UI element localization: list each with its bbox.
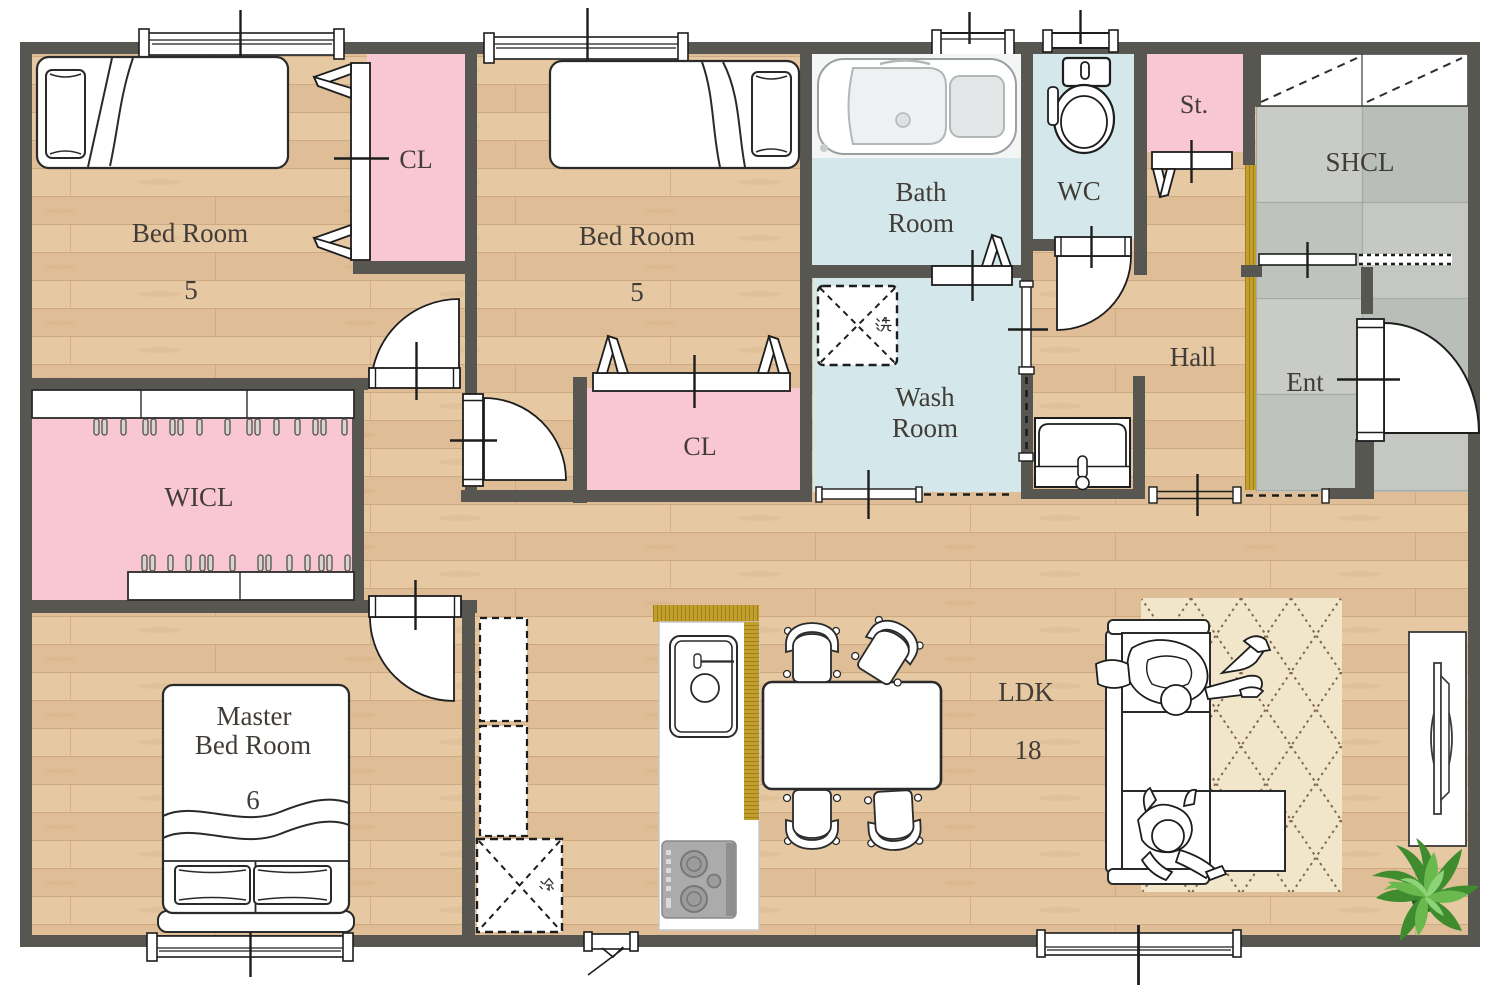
svg-text:Bath: Bath <box>896 177 947 207</box>
svg-text:Wash: Wash <box>895 382 955 412</box>
svg-text:Bed Room: Bed Room <box>195 730 311 760</box>
svg-text:Hall: Hall <box>1170 342 1217 372</box>
svg-text:SHCL: SHCL <box>1325 147 1394 177</box>
svg-text:CL: CL <box>399 145 432 174</box>
svg-text:Room: Room <box>888 208 954 238</box>
svg-text:Bed Room: Bed Room <box>579 221 695 251</box>
svg-text:5: 5 <box>184 275 198 305</box>
svg-text:6: 6 <box>246 785 260 815</box>
svg-text:CL: CL <box>683 432 716 461</box>
svg-text:18: 18 <box>1015 735 1042 765</box>
svg-text:Bed Room: Bed Room <box>132 218 248 248</box>
svg-text:Room: Room <box>892 413 958 443</box>
svg-text:WICL: WICL <box>165 482 234 512</box>
svg-text:LDK: LDK <box>998 677 1054 707</box>
svg-text:St.: St. <box>1180 90 1208 119</box>
svg-text:WC: WC <box>1057 176 1101 206</box>
svg-text:5: 5 <box>630 277 644 307</box>
svg-text:Ent: Ent <box>1286 367 1324 397</box>
svg-text:Master: Master <box>217 701 292 731</box>
